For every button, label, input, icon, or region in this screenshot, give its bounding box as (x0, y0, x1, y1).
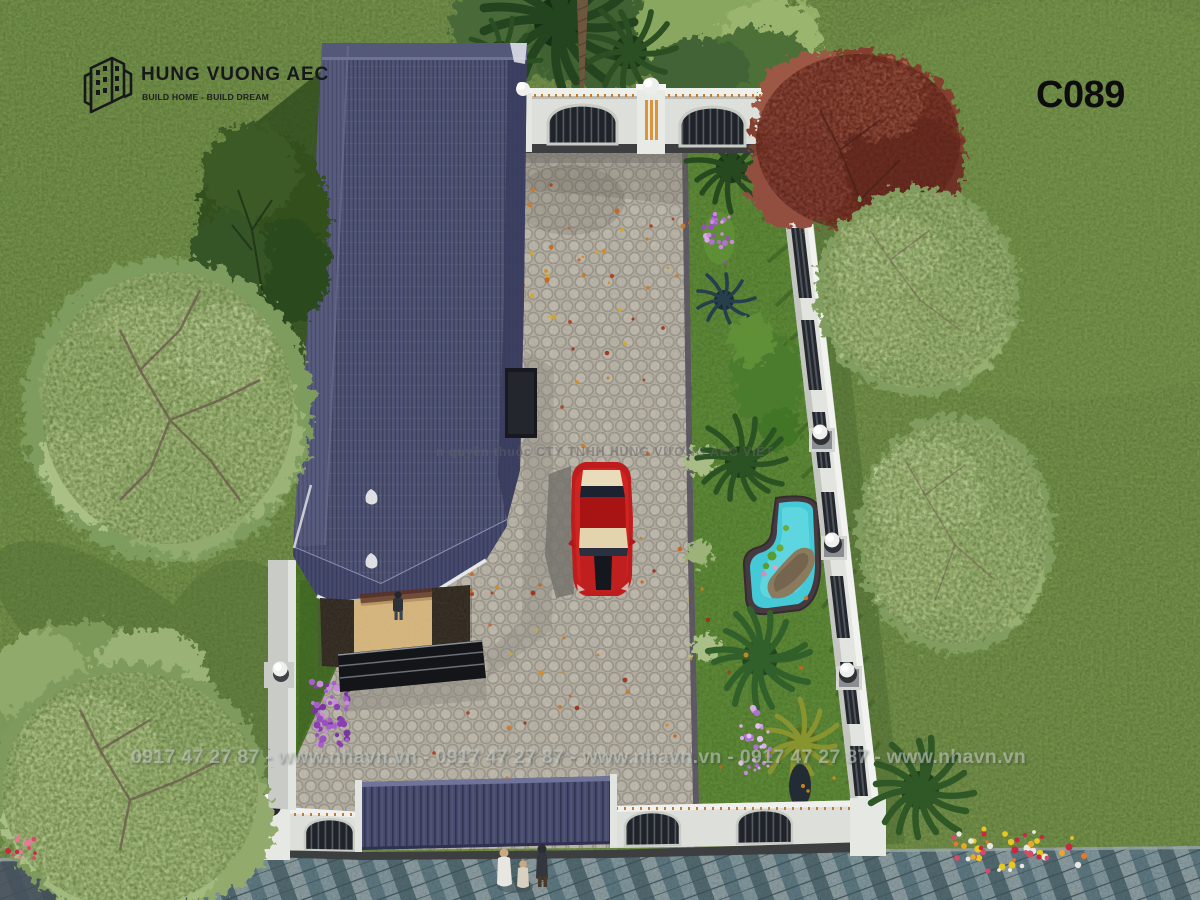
svg-text:BUILD HOME - BUILD DREAM: BUILD HOME - BUILD DREAM (142, 92, 269, 102)
svg-text:0917 47 27 87 - www.nhavn.vn -: 0917 47 27 87 - www.nhavn.vn - 0917 47 2… (131, 746, 1026, 768)
svg-text:n quyền thuộc CTY TNHH HÙNG VƯ: n quyền thuộc CTY TNHH HÙNG VƯƠNG AEC VI… (436, 444, 774, 459)
svg-text:C089: C089 (1036, 74, 1125, 116)
svg-text:HUNG VUONG AEC: HUNG VUONG AEC (141, 64, 329, 85)
